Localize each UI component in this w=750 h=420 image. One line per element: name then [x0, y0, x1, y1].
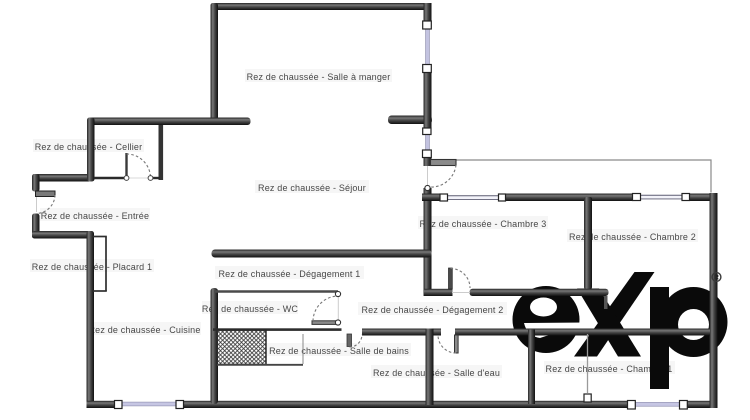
- svg-text:Rez de chaussée - Salle d'eau: Rez de chaussée - Salle d'eau: [373, 368, 500, 378]
- svg-text:Rez de chaussée - Dégagement 2: Rez de chaussée - Dégagement 2: [362, 305, 504, 315]
- svg-text:Rez de chaussée - Cuisine: Rez de chaussée - Cuisine: [88, 325, 200, 335]
- svg-text:Rez de chaussée - Salle à mang: Rez de chaussée - Salle à manger: [247, 72, 391, 82]
- svg-text:Rez de chaussée - Dégagement 1: Rez de chaussée - Dégagement 1: [219, 269, 361, 279]
- svg-text:Rez de chaussée - Entrée: Rez de chaussée - Entrée: [41, 211, 149, 221]
- svg-text:Rez de chaussée - Chambre 3: Rez de chaussée - Chambre 3: [420, 219, 547, 229]
- svg-text:Rez de chaussée - Salle de bai: Rez de chaussée - Salle de bains: [269, 346, 409, 356]
- svg-text:Rez de chaussée - Séjour: Rez de chaussée - Séjour: [258, 183, 366, 193]
